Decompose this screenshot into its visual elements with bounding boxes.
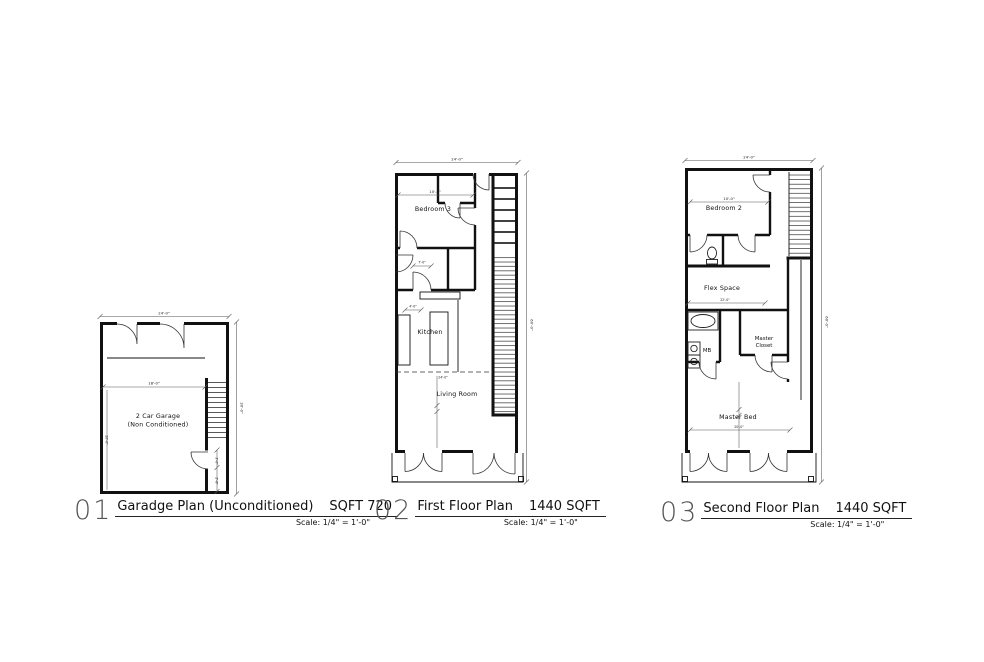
dim-interior-width: 18'-0": [148, 381, 160, 386]
svg-text:2 Car Garage: 2 Car Garage: [136, 413, 180, 420]
dim-stair-door: 3'-0": [215, 457, 219, 465]
master-closet-label-2: Closet: [756, 343, 773, 349]
first-floor-title-block: 02 First Floor Plan 1440 SQFT Scale: 1/4…: [374, 499, 606, 527]
dim-right: 60'-0": [825, 316, 830, 328]
svg-text:(Non Conditioned): (Non Conditioned): [128, 422, 189, 429]
plan-title-second-floor: Second Floor Plan: [703, 501, 819, 516]
garage-title-block: 01 Garadge Plan (Unconditioned) SQFT 720…: [74, 499, 398, 527]
garage-doors: [117, 324, 208, 469]
bedroom2-label: Bedroom 2: [706, 205, 742, 212]
dim-top: 24'-0": [743, 155, 755, 160]
first-floor-porch: [392, 453, 524, 482]
dim-bedroom: 10'-0": [723, 196, 735, 201]
dim-top: 24'-0": [451, 157, 463, 162]
master-bed-label: Master Bed: [719, 414, 757, 421]
dim-bedroom: 10'-0": [429, 189, 441, 194]
plan-number-03: 03: [660, 499, 698, 526]
dim-stair-landing: 2'-8": [215, 477, 219, 485]
floor-plan-sheet: 24'-0" 30'-0" 18'-0" 20'-0" 3'-0" 2'-8" …: [0, 0, 984, 662]
plan-sqft-second-floor: 1440 SQFT: [835, 501, 906, 516]
dim-master: 20'-0": [734, 425, 744, 429]
bedroom3-label: Bedroom 3: [415, 206, 451, 213]
plan-title-first-floor: First Floor Plan: [417, 499, 513, 514]
plan-number-01: 01: [74, 497, 112, 524]
plan-title-garage: Garadge Plan (Unconditioned): [117, 499, 313, 514]
first-floor-plan-drawing: 24'-0" 60'-0" 10'-0" 7'-0" 4'-0" 24'-0" …: [375, 150, 545, 495]
vanity-sinks-icon: [688, 342, 700, 368]
second-floor-title-block: 03 Second Floor Plan 1440 SQFT Scale: 1/…: [660, 501, 912, 529]
dim-living: 24'-0": [438, 376, 448, 380]
living-room-label: Living Room: [437, 391, 478, 398]
second-floor-stairs: [790, 172, 811, 256]
flex-space-label: Flex Space: [704, 285, 740, 292]
dim-right: 60'-0": [530, 319, 535, 331]
plan-scale-second-floor: Scale: 1/4" = 1'-0": [810, 519, 912, 529]
first-floor-room-labels: Bedroom 3 Kitchen Living Room: [415, 206, 478, 398]
dim-interior-height: 20'-0": [105, 435, 109, 445]
garage-room-label: 2 Car Garage (Non Conditioned): [128, 413, 189, 429]
plan-scale-first-floor: Scale: 1/4" = 1'-0": [504, 517, 606, 527]
garage-stairs: [208, 378, 226, 442]
mb-label: MB: [703, 348, 712, 354]
dim-right: 30'-0": [240, 402, 245, 414]
dim-top: 24'-0": [158, 311, 170, 316]
plan-number-02: 02: [374, 497, 412, 524]
first-floor-stairs: [495, 186, 516, 414]
master-closet-label-1: Master: [755, 336, 774, 342]
dim-bath: 7'-0": [418, 261, 426, 265]
dim-kitchen: 4'-0": [409, 305, 417, 309]
second-floor-plan-drawing: 24'-0" 60'-0" 10'-0" 22'-0" 20'-0" Bedro…: [660, 150, 840, 495]
plan-sqft-first-floor: 1440 SQFT: [529, 499, 600, 514]
kitchen-label: Kitchen: [417, 329, 442, 336]
dim-flex: 22'-0": [720, 298, 730, 302]
toilet-icon: [707, 247, 718, 264]
bathtub-icon: [688, 312, 718, 330]
